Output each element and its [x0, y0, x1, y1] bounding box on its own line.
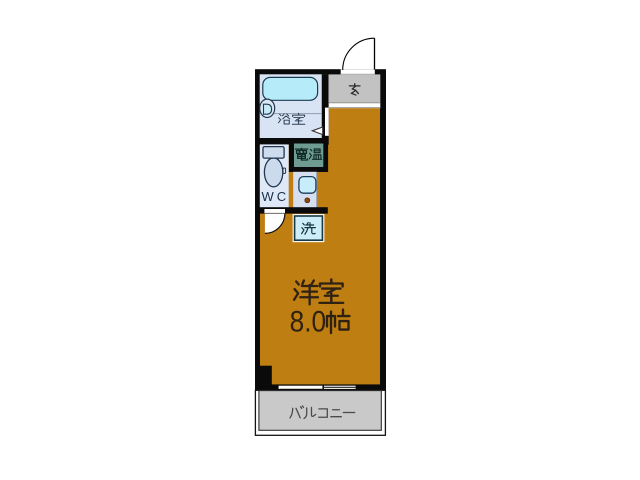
- svg-text:WC: WC: [262, 189, 290, 204]
- svg-text:8.0: 8.0: [290, 306, 327, 339]
